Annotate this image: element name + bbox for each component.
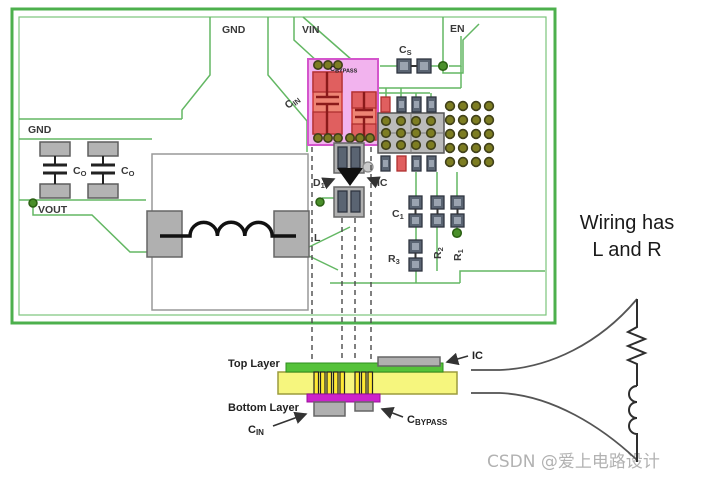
ic-pads-bottom bbox=[381, 156, 436, 171]
label-cbypass-section: CBYPASS bbox=[407, 414, 448, 427]
label-top-layer: Top Layer bbox=[228, 358, 280, 370]
annotation-line2: L and R bbox=[592, 239, 661, 261]
pcb-board bbox=[12, 9, 555, 323]
label-l: L bbox=[314, 232, 321, 244]
cbypass-side-view bbox=[355, 402, 373, 411]
label-ic-section: IC bbox=[472, 350, 483, 362]
label-cs: CS bbox=[399, 44, 412, 57]
watermark: CSDN @爱上电路设计 bbox=[487, 452, 660, 472]
ic-package bbox=[378, 97, 444, 171]
inductor bbox=[147, 154, 309, 310]
cap-cin-footprint bbox=[313, 72, 342, 134]
projection-dashed-lines bbox=[312, 147, 371, 362]
net-label-vin: VIN bbox=[302, 24, 320, 36]
annotation-line1: Wiring has bbox=[580, 212, 674, 234]
wire-pair-stub bbox=[471, 370, 500, 393]
diode-symbol bbox=[337, 168, 363, 186]
net-label-vout: VOUT bbox=[38, 204, 68, 216]
vout-via bbox=[29, 199, 37, 207]
cbypass-arrow bbox=[382, 409, 403, 417]
net-label-gnd-top: GND bbox=[222, 24, 246, 36]
cap-c1 bbox=[409, 196, 422, 227]
label-r1: R1 bbox=[452, 249, 465, 261]
cap-cs bbox=[397, 59, 431, 73]
cin-arrow bbox=[273, 414, 306, 426]
label-r2: R2 bbox=[432, 247, 445, 259]
funnel-curve-top bbox=[500, 299, 637, 370]
diode-d1 bbox=[334, 143, 373, 217]
label-cin-section: CIN bbox=[248, 424, 264, 437]
ic-side-view bbox=[378, 357, 440, 366]
res-r2 bbox=[431, 196, 444, 227]
pcb-layout-figure: CSDN @爱上电路设计 GND VIN EN GND VOUT CS CO C… bbox=[0, 0, 702, 482]
label-co2: CO bbox=[121, 165, 135, 178]
cap-cbypass-footprint bbox=[352, 92, 376, 140]
sw-node-via bbox=[316, 198, 324, 206]
stitching-vias bbox=[314, 372, 373, 394]
label-co1: CO bbox=[73, 165, 87, 178]
ground-via-grid bbox=[446, 102, 494, 167]
res-r1 bbox=[451, 196, 464, 227]
cs-via bbox=[439, 62, 448, 71]
label-r3: R3 bbox=[388, 253, 400, 266]
label-c1: C1 bbox=[392, 208, 404, 221]
bottom-copper-layer bbox=[307, 394, 380, 402]
resistor-symbol bbox=[628, 299, 645, 386]
inductor-symbol bbox=[629, 386, 637, 462]
cap-co-2 bbox=[88, 142, 118, 198]
label-d1: D1 bbox=[313, 177, 325, 190]
r1-via bbox=[453, 229, 462, 238]
cap-co-1 bbox=[40, 142, 70, 198]
d1-arrow bbox=[327, 179, 334, 182]
net-label-en: EN bbox=[450, 23, 465, 35]
res-r3 bbox=[409, 240, 422, 271]
label-bottom-layer: Bottom Layer bbox=[228, 402, 300, 414]
ic-arrow bbox=[447, 356, 468, 362]
label-ic-board: IC bbox=[377, 177, 388, 189]
cross-section bbox=[273, 356, 500, 426]
cin-side-view bbox=[314, 402, 345, 416]
ic-pads-top bbox=[381, 97, 436, 112]
net-label-gnd-left: GND bbox=[28, 124, 52, 136]
funnel-curve-bottom bbox=[500, 393, 637, 460]
